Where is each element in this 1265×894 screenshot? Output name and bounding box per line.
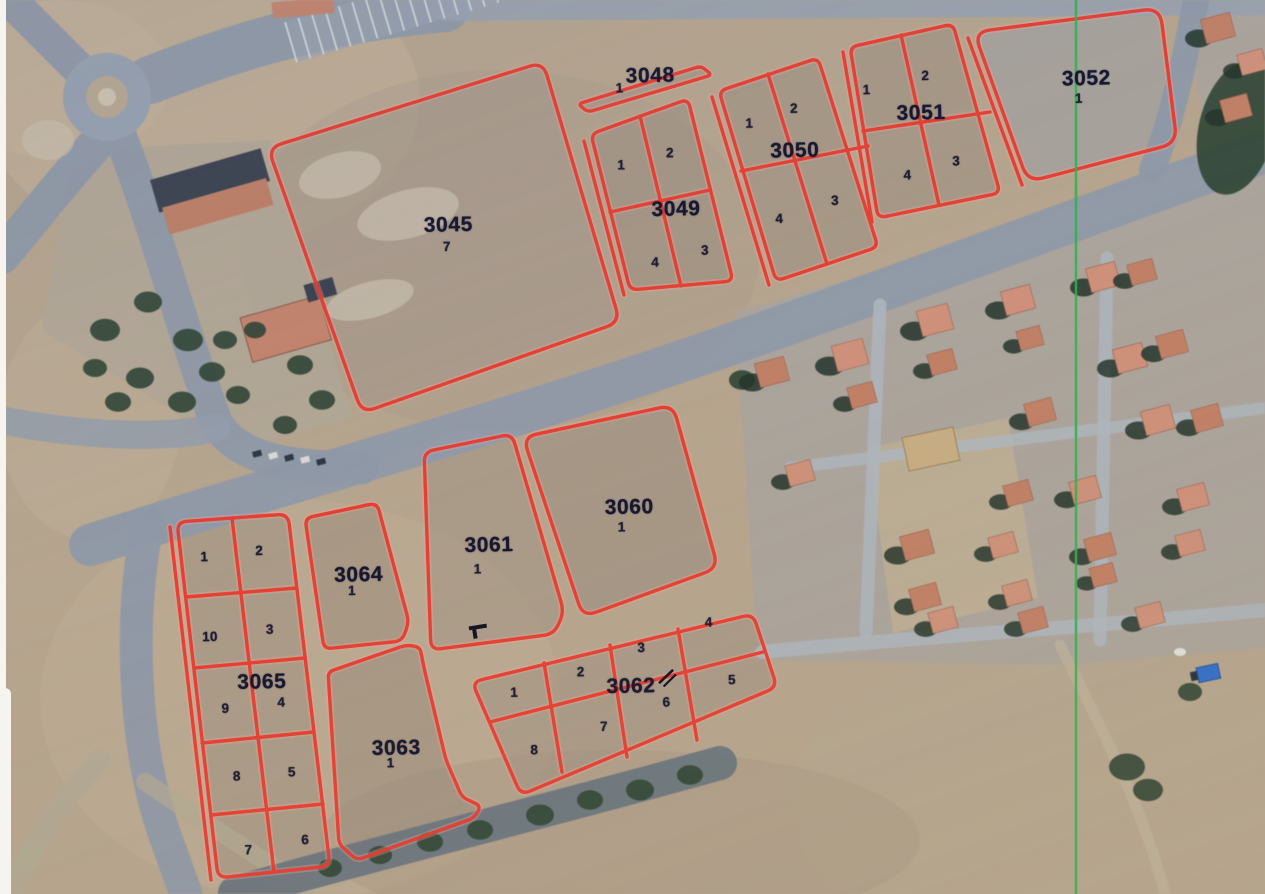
parcel-boundaries	[170, 10, 1175, 880]
scan-edge-bottom-left	[0, 688, 11, 894]
parcel-boundary-3045	[271, 65, 616, 409]
parcel-overlay-layer	[0, 0, 1265, 894]
annotation-t-mark	[469, 624, 489, 640]
aerial-cadastral-map: 3045730481304912343050123430511234305213…	[0, 0, 1265, 894]
parcel-boundary-3064	[306, 504, 408, 648]
